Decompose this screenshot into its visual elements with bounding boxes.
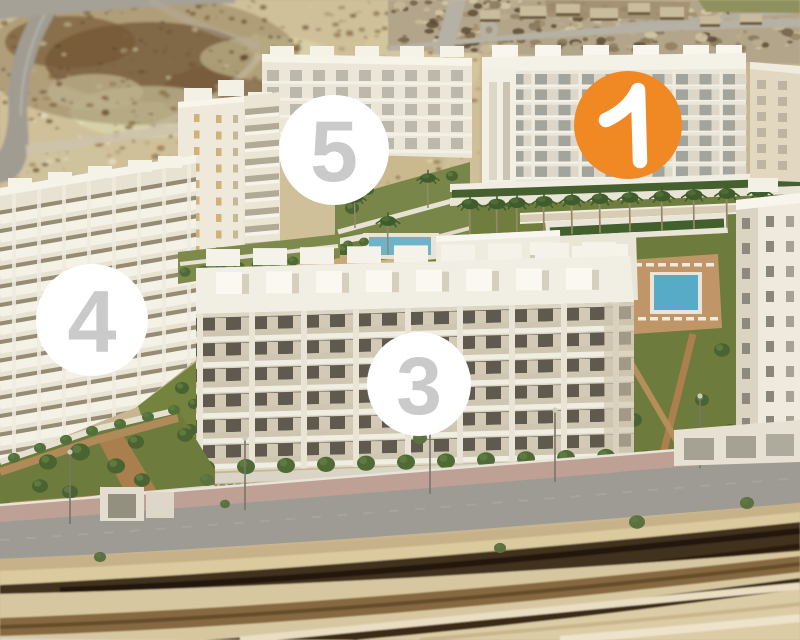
svg-text:3: 3 — [396, 341, 442, 432]
svg-text:5: 5 — [310, 104, 358, 200]
svg-text:4: 4 — [68, 272, 117, 371]
